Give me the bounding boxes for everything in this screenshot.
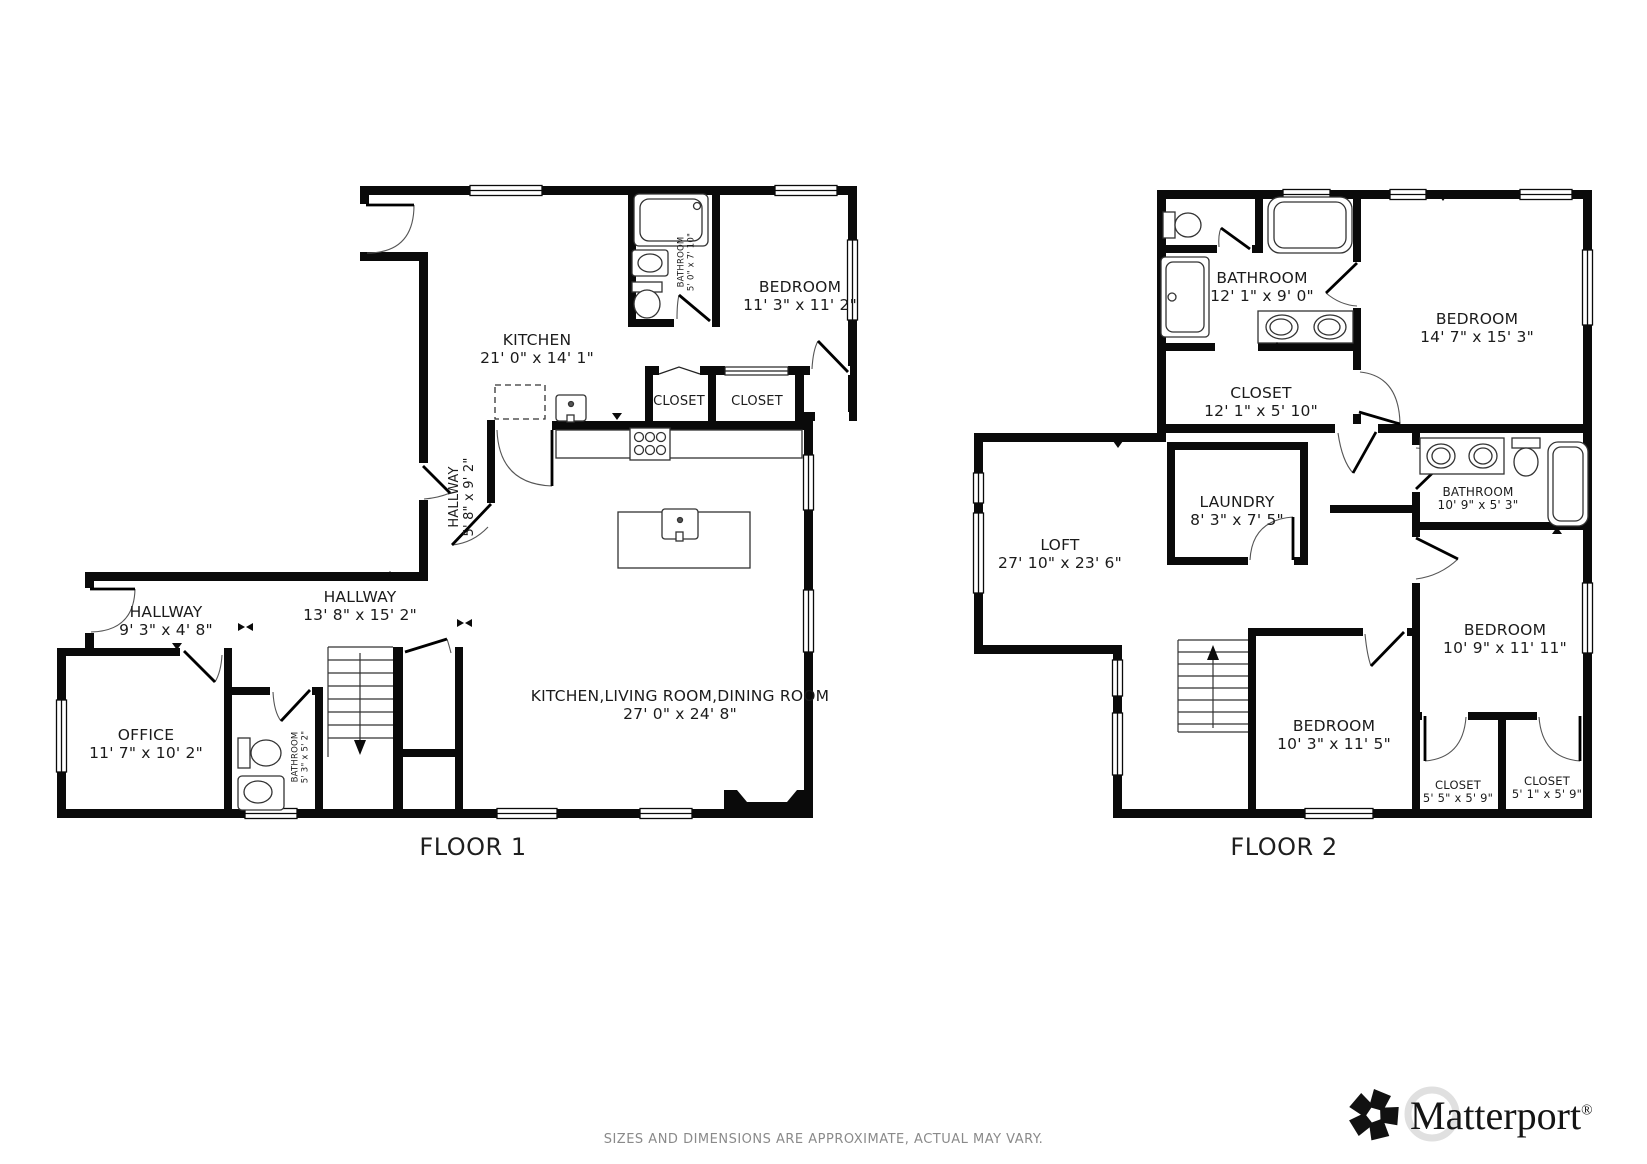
room-label-bedroom-right: BEDROOM 10' 9" x 11' 11" xyxy=(1443,622,1567,657)
room-name: BEDROOM xyxy=(1277,718,1391,736)
room-dims: 5' 0" x 7' 10" xyxy=(687,233,697,291)
room-name: KITCHEN,LIVING ROOM,DINING ROOM xyxy=(531,688,829,706)
room-label-closet-large: CLOSET 12' 1" x 5' 10" xyxy=(1204,385,1318,420)
counter xyxy=(556,430,802,458)
room-name: LOFT xyxy=(998,537,1122,555)
fireplace-icon xyxy=(724,790,810,811)
room-name: CLOSET xyxy=(731,395,783,409)
toilet-icon xyxy=(1163,212,1175,238)
room-label-closet-a-f2: CLOSET 5' 5" x 5' 9" xyxy=(1423,779,1493,804)
matterport-wordmark: Matterport® xyxy=(1410,1092,1592,1139)
room-dims: 11' 7" x 10' 2" xyxy=(89,745,203,763)
room-dims: 14' 7" x 15' 3" xyxy=(1420,329,1534,347)
room-label-closet-a-f1: CLOSET xyxy=(653,395,705,409)
room-dims: 21' 0" x 14' 1" xyxy=(480,350,594,368)
floorplan-drawing xyxy=(0,0,1647,1164)
floor2-stairs xyxy=(1178,640,1248,732)
room-name: BATHROOM xyxy=(1210,270,1314,288)
room-label-closet-b-f2: CLOSET 5' 1" x 5' 9" xyxy=(1512,775,1582,800)
room-label-hallway-left: HALLWAY 9' 3" x 4' 8" xyxy=(119,604,213,639)
room-name: BEDROOM xyxy=(1443,622,1567,640)
disclaimer-text: SIZES AND DIMENSIONS ARE APPROXIMATE, AC… xyxy=(0,1132,1647,1147)
room-label-hallway-upper: HALLWAY 5' 8" x 9' 2" xyxy=(447,457,477,536)
room-label-great-room: KITCHEN,LIVING ROOM,DINING ROOM 27' 0" x… xyxy=(531,688,829,723)
fridge-dashed xyxy=(495,385,545,419)
room-name: HALLWAY xyxy=(447,457,462,536)
room-label-bathroom-top: BATHROOM 5' 0" x 7' 10" xyxy=(678,233,697,291)
room-dims: 10' 3" x 11' 5" xyxy=(1277,736,1391,754)
room-label-bedroom-f1: BEDROOM 11' 3" x 11' 2" xyxy=(743,279,857,314)
room-dims: 11' 3" x 11' 2" xyxy=(743,297,857,315)
room-name: KITCHEN xyxy=(480,332,594,350)
room-name: OFFICE xyxy=(89,727,203,745)
brand-name: Matterport xyxy=(1410,1093,1581,1138)
room-name: CLOSET xyxy=(1423,779,1493,792)
room-label-office: OFFICE 11' 7" x 10' 2" xyxy=(89,727,203,762)
room-dims: 5' 8" x 9' 2" xyxy=(462,457,477,536)
room-name: CLOSET xyxy=(1204,385,1318,403)
room-dims: 5' 1" x 5' 9" xyxy=(1512,788,1582,801)
room-label-closet-b-f1: CLOSET xyxy=(731,395,783,409)
floor1-title: FLOOR 1 xyxy=(419,833,526,861)
room-label-laundry: LAUNDRY 8' 3" x 7' 5" xyxy=(1190,494,1284,529)
room-dims: 5' 5" x 5' 9" xyxy=(1423,792,1493,805)
room-dims: 10' 9" x 5' 3" xyxy=(1438,499,1519,512)
floor2-title: FLOOR 2 xyxy=(1230,833,1337,861)
room-dims: 5' 3" x 5' 2" xyxy=(301,731,311,784)
floor1-stairs xyxy=(328,647,393,757)
room-label-bedroom-large: BEDROOM 14' 7" x 15' 3" xyxy=(1420,311,1534,346)
room-name: HALLWAY xyxy=(119,604,213,622)
room-label-bedroom-bottom: BEDROOM 10' 3" x 11' 5" xyxy=(1277,718,1391,753)
room-name: CLOSET xyxy=(653,395,705,409)
toilet-icon xyxy=(1512,438,1540,448)
room-dims: 8' 3" x 7' 5" xyxy=(1190,512,1284,530)
registered-mark: ® xyxy=(1581,1103,1592,1119)
room-name: BEDROOM xyxy=(1420,311,1534,329)
room-dims: 9' 3" x 4' 8" xyxy=(119,622,213,640)
room-label-bathroom-top-f2: BATHROOM 12' 1" x 9' 0" xyxy=(1210,270,1314,305)
room-name: LAUNDRY xyxy=(1190,494,1284,512)
room-name: BEDROOM xyxy=(743,279,857,297)
toilet-icon xyxy=(238,738,250,768)
room-dims: 12' 1" x 5' 10" xyxy=(1204,403,1318,421)
room-label-loft: LOFT 27' 10" x 23' 6" xyxy=(998,537,1122,572)
room-dims: 13' 8" x 15' 2" xyxy=(303,607,417,625)
room-name: HALLWAY xyxy=(303,589,417,607)
room-name: CLOSET xyxy=(1512,775,1582,788)
floorplan-canvas: KITCHEN 21' 0" x 14' 1" BATHROOM 5' 0" x… xyxy=(0,0,1647,1164)
room-label-kitchen: KITCHEN 21' 0" x 14' 1" xyxy=(480,332,594,367)
room-dims: 27' 10" x 23' 6" xyxy=(998,555,1122,573)
room-label-hallway-main: HALLWAY 13' 8" x 15' 2" xyxy=(303,589,417,624)
room-label-bathroom-small: BATHROOM 10' 9" x 5' 3" xyxy=(1438,486,1519,512)
stairs-down-arrow xyxy=(354,740,366,755)
room-dims: 12' 1" x 9' 0" xyxy=(1210,288,1314,306)
room-dims: 10' 9" x 11' 11" xyxy=(1443,640,1567,658)
room-dims: 27' 0" x 24' 8" xyxy=(531,706,829,724)
room-label-bathroom-lower: BATHROOM 5' 3" x 5' 2" xyxy=(292,731,311,784)
